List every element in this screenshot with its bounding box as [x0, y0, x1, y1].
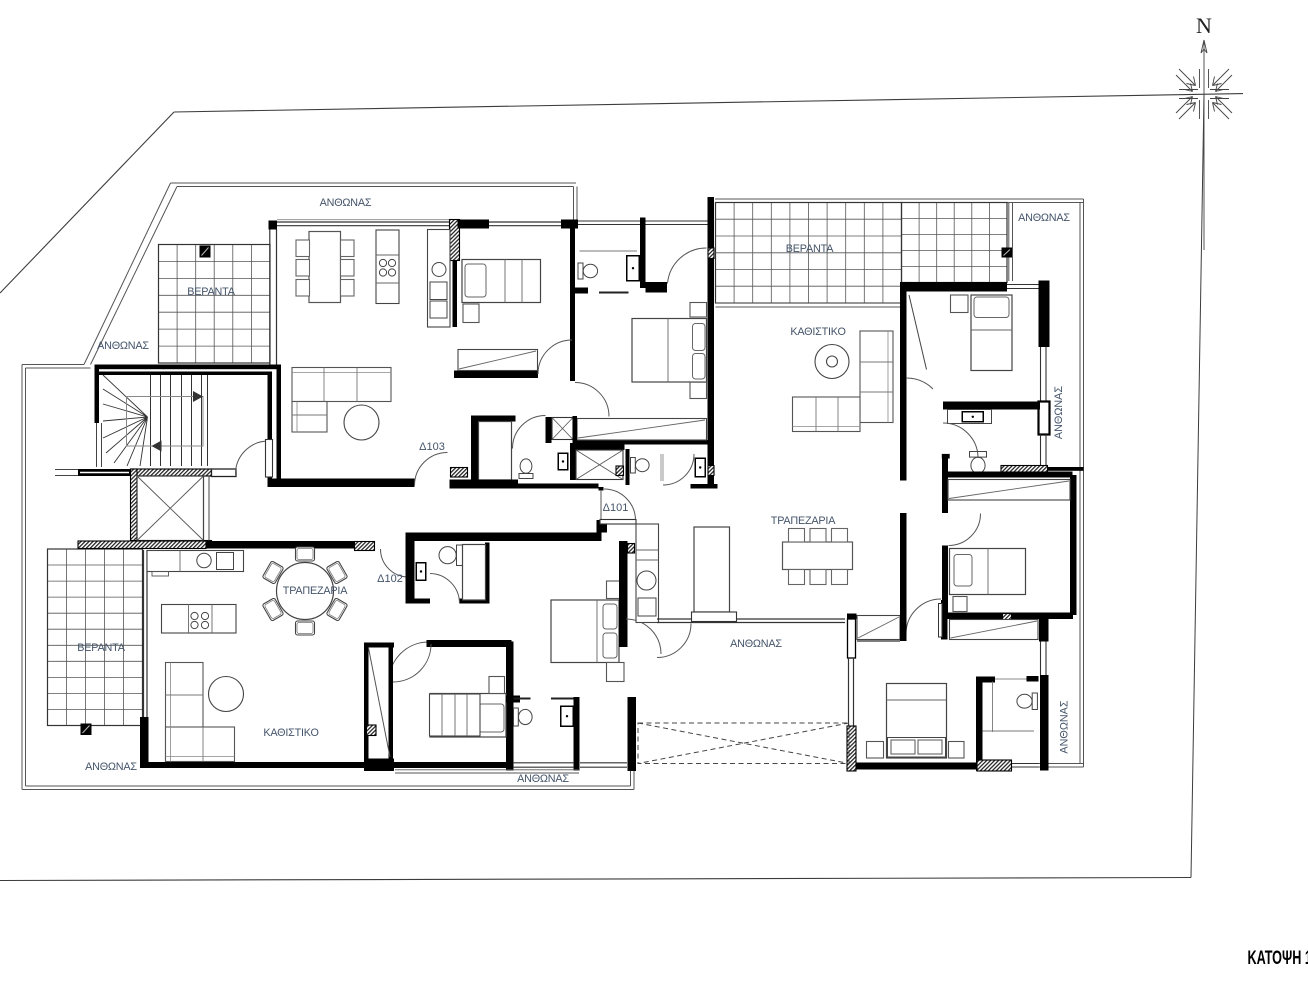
svg-text:N: N [1196, 13, 1212, 38]
svg-text:ΑΝΘΩΝΑΣ: ΑΝΘΩΝΑΣ [320, 197, 372, 209]
svg-text:ΒΕΡΑΝΤΑ: ΒΕΡΑΝΤΑ [77, 642, 125, 654]
svg-text:ΑΝΘΩΝΑΣ: ΑΝΘΩΝΑΣ [97, 340, 149, 352]
svg-text:ΑΝΘΩΝΑΣ: ΑΝΘΩΝΑΣ [1053, 386, 1065, 439]
svg-text:Δ101: Δ101 [603, 502, 629, 514]
svg-text:ΤΡΑΠΕΖΑΡΙΑ: ΤΡΑΠΕΖΑΡΙΑ [771, 515, 836, 527]
svg-text:ΤΡΑΠΕΖΑΡΙΑ: ΤΡΑΠΕΖΑΡΙΑ [283, 585, 348, 597]
svg-text:ΑΝΘΩΝΑΣ: ΑΝΘΩΝΑΣ [730, 638, 782, 650]
svg-text:Δ103: Δ103 [419, 441, 445, 453]
svg-text:ΒΕΡΑΝΤΑ: ΒΕΡΑΝΤΑ [786, 243, 834, 255]
svg-text:ΑΝΘΩΝΑΣ: ΑΝΘΩΝΑΣ [85, 761, 137, 773]
svg-text:ΑΝΘΩΝΑΣ: ΑΝΘΩΝΑΣ [1018, 212, 1070, 224]
svg-text:ΚΑΤΟΨΗ 1: ΚΑΤΟΨΗ 1 [1248, 948, 1308, 969]
svg-text:ΚΑΘΙΣΤΙΚΟ: ΚΑΘΙΣΤΙΚΟ [790, 326, 845, 338]
svg-text:Δ102: Δ102 [377, 573, 403, 585]
svg-text:ΚΑΘΙΣΤΙΚΟ: ΚΑΘΙΣΤΙΚΟ [263, 727, 318, 739]
svg-text:ΑΝΘΩΝΑΣ: ΑΝΘΩΝΑΣ [1059, 700, 1071, 753]
svg-text:ΒΕΡΑΝΤΑ: ΒΕΡΑΝΤΑ [187, 286, 235, 298]
svg-text:ΑΝΘΩΝΑΣ: ΑΝΘΩΝΑΣ [517, 773, 569, 785]
